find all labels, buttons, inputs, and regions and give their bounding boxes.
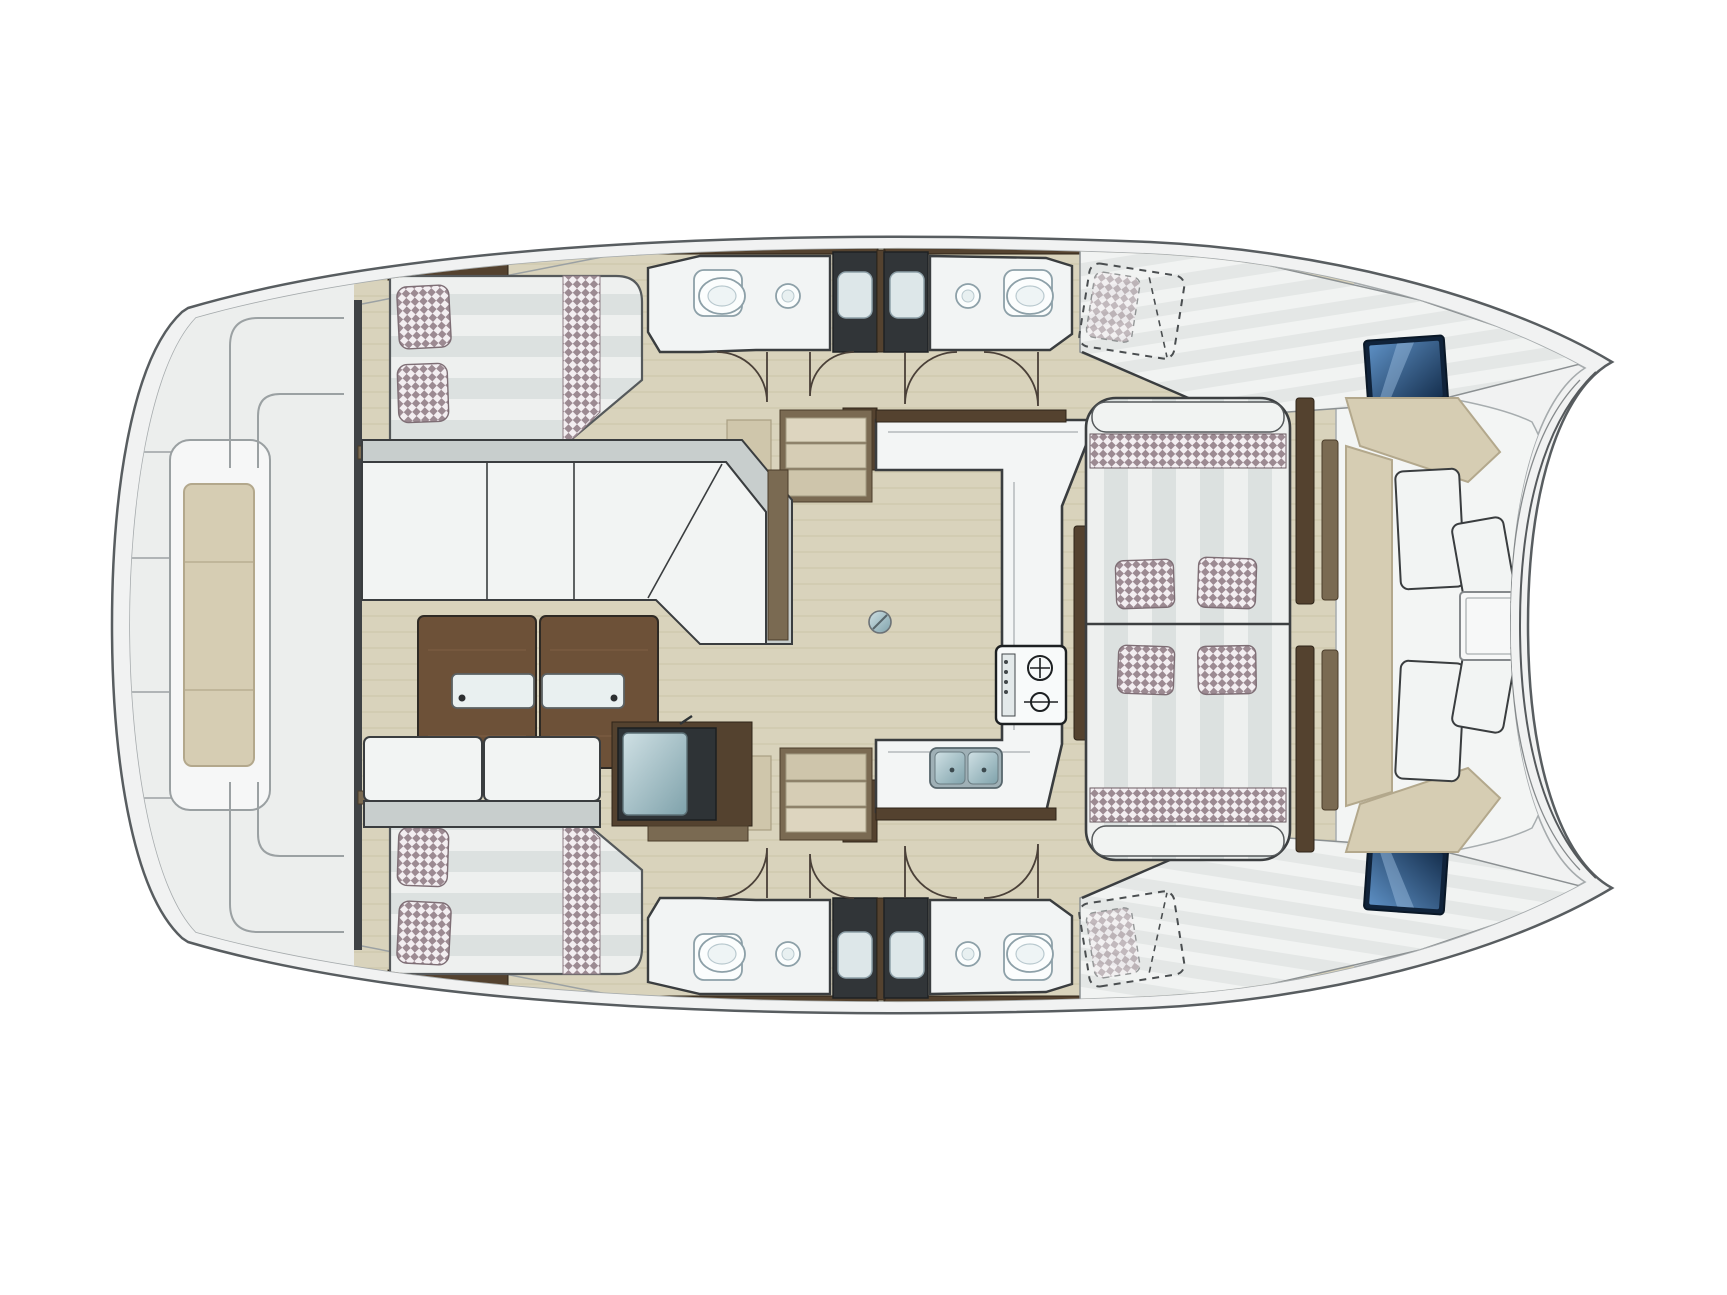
dinette-pillow [1117,645,1175,695]
stern-bench [170,440,270,810]
bulkhead-wood-bar [1296,398,1314,604]
dinette [1074,398,1290,860]
dinette-blanket-band [1090,788,1286,822]
dinette-headrest [1092,826,1284,856]
icebox [612,716,752,841]
table-latch [459,695,466,702]
bulkhead-wood-bar [1296,646,1314,852]
dinette-pillow [1115,559,1175,609]
icebox-lid [623,733,687,815]
dinette-headrest [1092,402,1284,432]
dinette-pillow [1197,557,1257,609]
saloon-bench [364,737,600,827]
table-latch [611,695,618,702]
stern-bench-cushion [184,484,254,766]
stove [996,646,1066,724]
table-glass-insert [452,674,534,708]
galley-sink [930,748,1002,788]
bench-base [364,801,600,827]
floor-plan-page [0,0,1727,1295]
icebox-step [648,826,748,841]
counter-wood-edge [876,808,1056,820]
catamaran-floor-plan [0,0,1727,1295]
cockpit-sofa-back [1346,446,1392,806]
dinette-pillow [1198,645,1257,694]
counter-wood-edge [876,410,1066,422]
saloon-aft-wall [354,300,362,950]
bulkhead-wood-bar [1322,440,1338,600]
bulkhead-wood-bar [1322,650,1338,810]
dinette-blanket-band [1090,434,1286,468]
settee-wood-trim [768,470,788,640]
table-glass-insert [542,674,624,708]
